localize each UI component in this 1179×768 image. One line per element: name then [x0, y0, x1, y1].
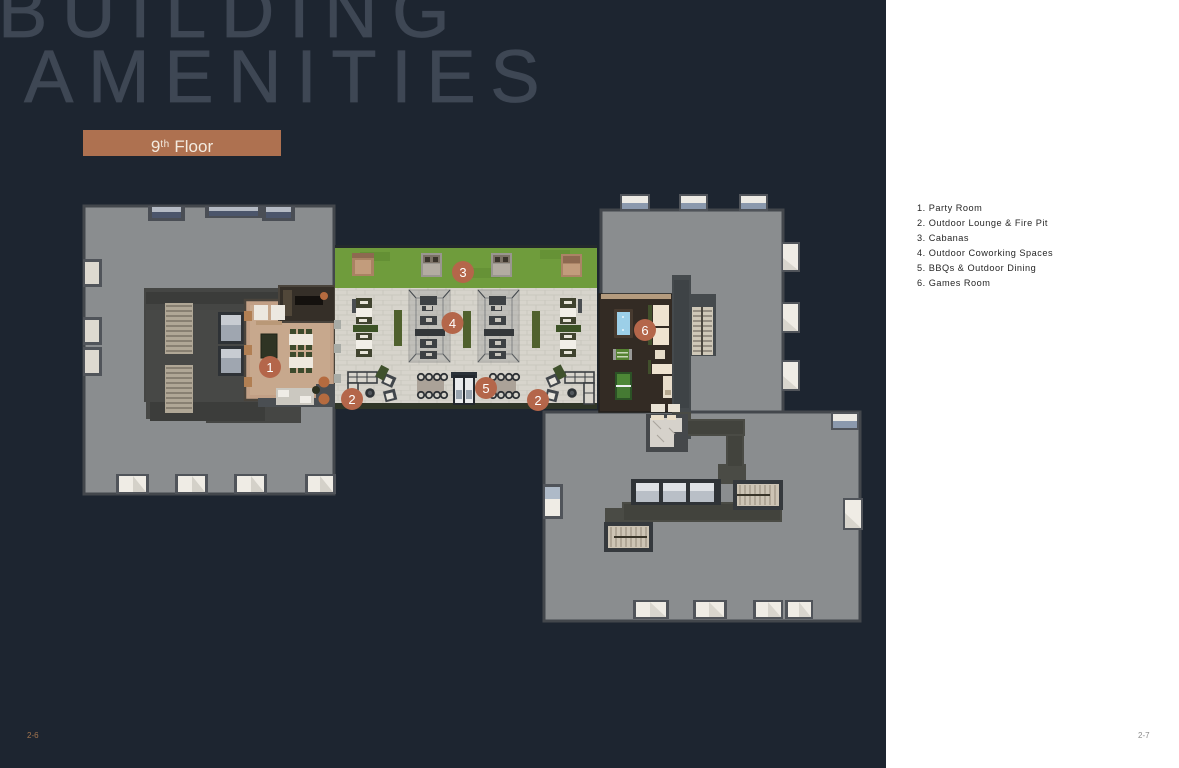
- svg-text:6: 6: [641, 323, 648, 338]
- svg-text:4: 4: [449, 316, 456, 331]
- svg-text:2: 2: [534, 393, 541, 408]
- svg-text:3: 3: [459, 265, 466, 280]
- svg-text:2: 2: [348, 392, 355, 407]
- svg-text:1: 1: [266, 360, 273, 375]
- svg-text:5: 5: [482, 381, 489, 396]
